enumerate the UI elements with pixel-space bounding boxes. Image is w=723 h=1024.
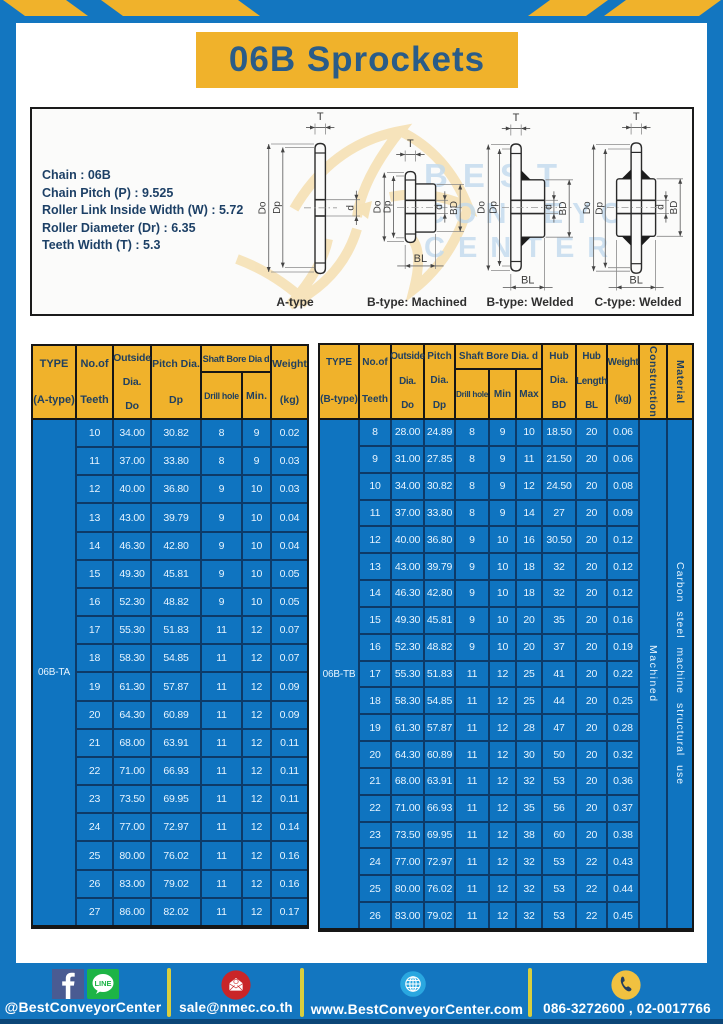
svg-text:B-type: Machined: B-type: Machined	[367, 295, 467, 309]
svg-text:BD: BD	[669, 201, 680, 215]
svg-text:Do: Do	[477, 201, 488, 214]
svg-text:BD: BD	[558, 202, 569, 216]
svg-text:BL: BL	[521, 274, 534, 286]
svg-text:Dp: Dp	[383, 200, 394, 213]
svg-text:Do: Do	[582, 201, 593, 214]
svg-text:Dp: Dp	[272, 201, 283, 214]
svg-text:T: T	[407, 138, 414, 150]
svg-text:LINE: LINE	[94, 979, 111, 988]
svg-text:T: T	[513, 112, 520, 124]
svg-text:B-type: Welded: B-type: Welded	[486, 295, 573, 309]
svg-text:d: d	[655, 204, 666, 210]
svg-text:BL: BL	[414, 253, 427, 265]
svg-text:Do: Do	[258, 201, 269, 214]
svg-text:BEST: BEST	[424, 157, 572, 194]
svg-text:BL: BL	[629, 274, 642, 286]
svg-text:d: d	[434, 204, 445, 210]
svg-text:Dp: Dp	[489, 201, 500, 214]
svg-text:T: T	[633, 111, 640, 123]
svg-text:C-type: Welded: C-type: Welded	[594, 295, 681, 309]
svg-text:A-type: A-type	[276, 295, 314, 309]
svg-text:d: d	[543, 204, 554, 210]
svg-text:d: d	[345, 205, 356, 211]
svg-text:Dp: Dp	[594, 202, 605, 215]
svg-text:BD: BD	[449, 201, 460, 215]
svg-text:T: T	[317, 111, 324, 123]
